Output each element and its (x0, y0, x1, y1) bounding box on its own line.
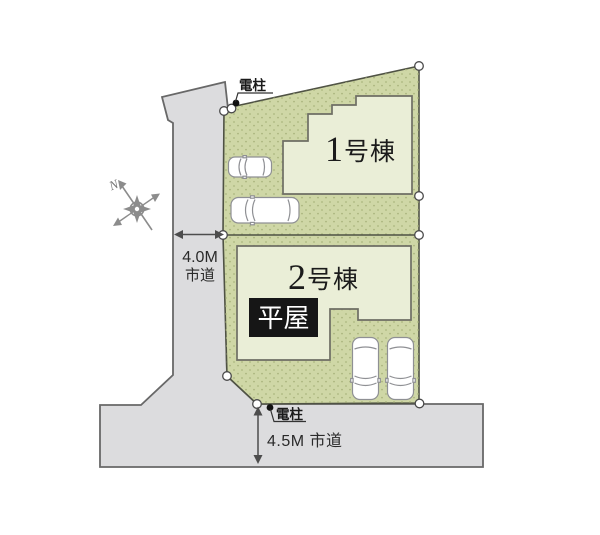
boundary-marker (415, 192, 424, 201)
boundary-marker (253, 400, 262, 409)
site-plan-canvas: 1号棟 2号棟 平屋 (0, 0, 600, 535)
utility-pole-bottom-label: 電柱 (276, 406, 303, 422)
car-van-middle (231, 196, 299, 225)
boundary-marker (415, 399, 424, 408)
car-small-top (229, 156, 272, 179)
compass: N (106, 176, 160, 230)
car-van-bottom-right (386, 338, 416, 400)
boundary-marker (415, 231, 424, 240)
car-van-bottom-left (351, 338, 381, 400)
south-road-label: 4.5M 市道 (267, 432, 343, 450)
site-plan-drawing: 1号棟 2号棟 平屋 (0, 0, 600, 535)
boundary-marker (223, 372, 232, 381)
west-road-width-label: 4.0M (182, 249, 218, 266)
west-road-type-label: 市道 (185, 267, 215, 284)
single-story-badge-label: 平屋 (257, 304, 309, 333)
utility-pole-top-label: 電柱 (239, 77, 266, 93)
boundary-marker (415, 62, 424, 71)
